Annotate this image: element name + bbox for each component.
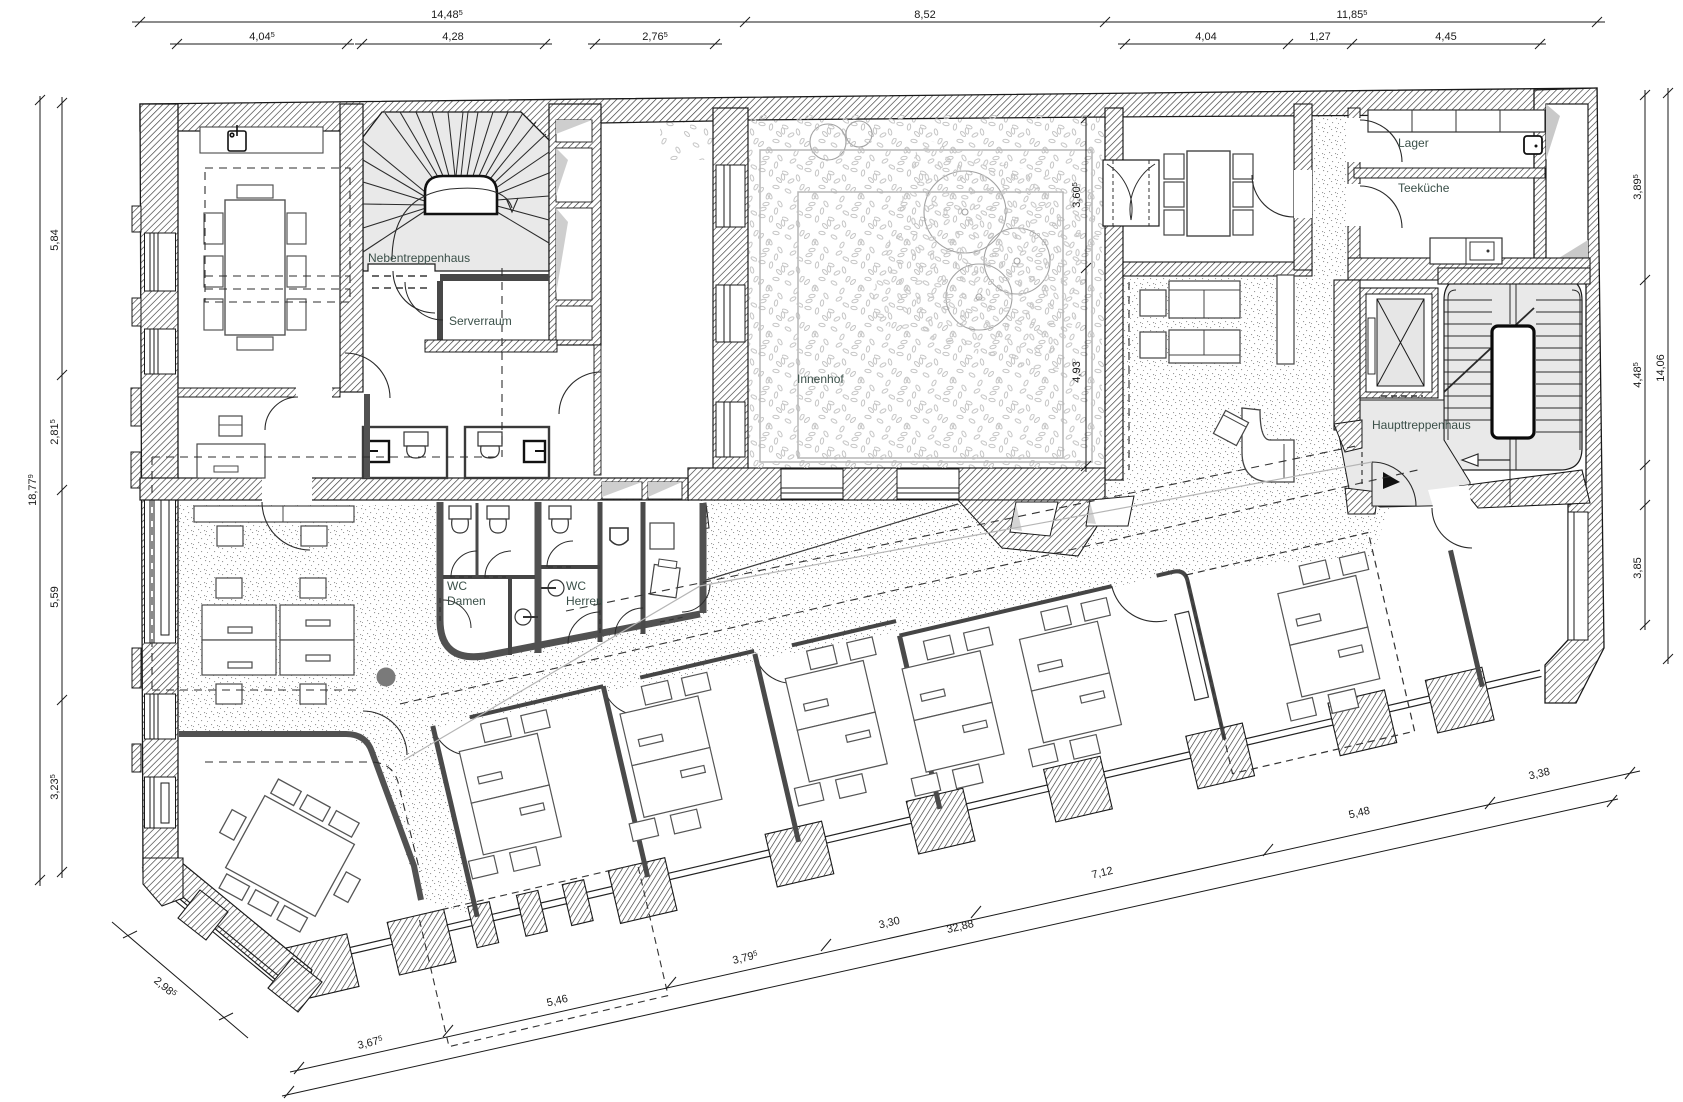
svg-text:Herren: Herren [566,594,603,608]
svg-text:WC: WC [566,579,586,593]
svg-text:5,84: 5,84 [49,229,61,250]
svg-text:4,04: 4,04 [1195,31,1216,43]
svg-text:Innenhof: Innenhof [797,372,844,386]
svg-text:3,85: 3,85 [1632,557,1644,578]
svg-text:WC: WC [447,579,467,593]
svg-text:Lager: Lager [1398,136,1429,150]
svg-text:8,52: 8,52 [914,9,935,21]
svg-text:18,779: 18,779 [26,474,39,506]
svg-text:4,28: 4,28 [442,31,463,43]
svg-text:1,27: 1,27 [1309,31,1330,43]
svg-text:4,93: 4,93 [1071,361,1083,382]
svg-text:Haupttreppenhaus: Haupttreppenhaus [1372,418,1471,432]
svg-text:5,59: 5,59 [49,586,61,607]
svg-text:Serverraum: Serverraum [449,314,512,328]
svg-text:4,45: 4,45 [1435,31,1456,43]
svg-text:14,485: 14,485 [431,8,463,21]
svg-text:Nebentreppenhaus: Nebentreppenhaus [368,251,470,265]
svg-text:11,855: 11,855 [1337,8,1368,21]
svg-text:14,06: 14,06 [1655,354,1667,382]
svg-text:Teeküche: Teeküche [1398,181,1450,195]
svg-text:Damen: Damen [447,594,486,608]
